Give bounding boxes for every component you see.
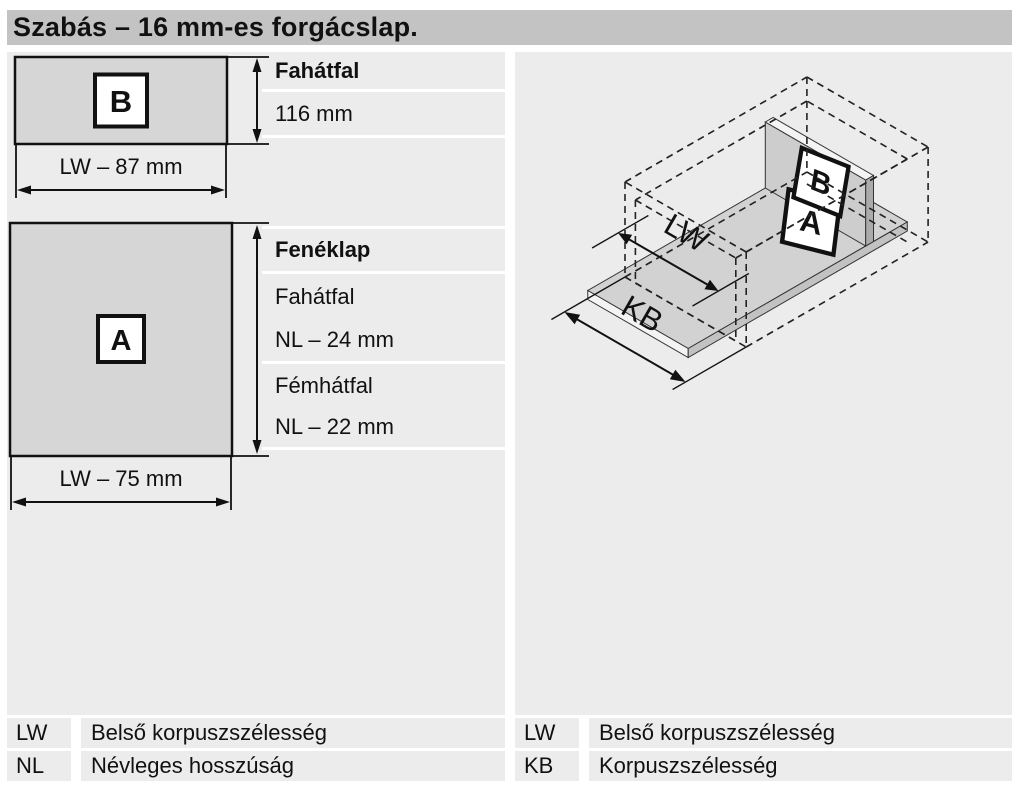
legend-desc: Korpuszszélesség: [589, 751, 1012, 781]
spec-row: Fahátfal: [262, 52, 505, 92]
part-b-height-arrow: [253, 58, 262, 143]
part-a-height-arrow: [253, 225, 262, 454]
spec-row-label: Fémhátfal: [275, 373, 373, 399]
legend-desc: Belső korpuszszélesség: [81, 718, 505, 748]
spec-row-label: NL – 22 mm: [275, 414, 394, 440]
spec-row-label: NL – 24 mm: [275, 327, 394, 353]
spec-row: 116 mm: [262, 92, 505, 138]
spec-row-label: 116 mm: [275, 101, 353, 127]
legend-row: LW Belső korpuszszélesség: [515, 718, 1012, 748]
part-b-width-dim: LW – 87 mm: [59, 154, 182, 179]
legend-row: LW Belső korpuszszélesség: [7, 718, 505, 748]
legend-abbr: KB: [515, 751, 579, 781]
legend-row: NL Névleges hosszúság: [7, 751, 505, 781]
legend-abbr: LW: [515, 718, 579, 748]
cutting-diagrams-panel: B: [7, 52, 505, 781]
legend-row: KB Korpuszszélesség: [515, 751, 1012, 781]
content: B: [7, 52, 1012, 781]
part-a-width-dim: LW – 75 mm: [59, 466, 182, 491]
spec-row-label: Fahátfal: [275, 284, 355, 310]
part-a-marker: A: [98, 316, 144, 362]
legend-desc: Belső korpuszszélesség: [589, 718, 1012, 748]
part-b-width-arrow: [17, 186, 225, 195]
part-a-spec-rows: Fenéklap Fahátfal NL – 24 mm Fémhátfal N…: [262, 226, 505, 450]
spec-row: Fahátfal: [262, 274, 505, 319]
spec-row-label: Fahátfal: [275, 58, 359, 84]
isometric-panel: A B: [515, 52, 1012, 781]
spec-row-label: Fenéklap: [275, 237, 370, 263]
part-a-width-arrow: [12, 498, 230, 507]
title-bar: Szabás – 16 mm-es forgácslap.: [7, 10, 1012, 45]
part-a-marker-letter: A: [111, 325, 132, 357]
legend-abbr: LW: [7, 718, 71, 748]
legend-desc: Névleges hosszúság: [81, 751, 505, 781]
part-b-marker: B: [95, 75, 147, 127]
page-title: Szabás – 16 mm-es forgácslap.: [7, 12, 418, 43]
spec-row: Fenéklap: [262, 229, 505, 274]
spec-row: NL – 24 mm: [262, 319, 505, 364]
legend-abbr: NL: [7, 751, 71, 781]
legend-right: LW Belső korpuszszélesség KB Korpuszszél…: [515, 715, 1012, 781]
isometric-drawing: A B: [515, 52, 1012, 512]
part-b-marker-letter: B: [110, 84, 132, 119]
legend-left: LW Belső korpuszszélesség NL Névleges ho…: [7, 715, 505, 781]
part-b-spec-rows: Fahátfal 116 mm: [262, 52, 505, 138]
page: Szabás – 16 mm-es forgácslap. B: [7, 10, 1012, 781]
spec-row: Fémhátfal: [262, 364, 505, 407]
part-b-drawing: B: [15, 57, 269, 198]
spec-row: NL – 22 mm: [262, 407, 505, 450]
part-a-drawing: A: [10, 223, 269, 510]
